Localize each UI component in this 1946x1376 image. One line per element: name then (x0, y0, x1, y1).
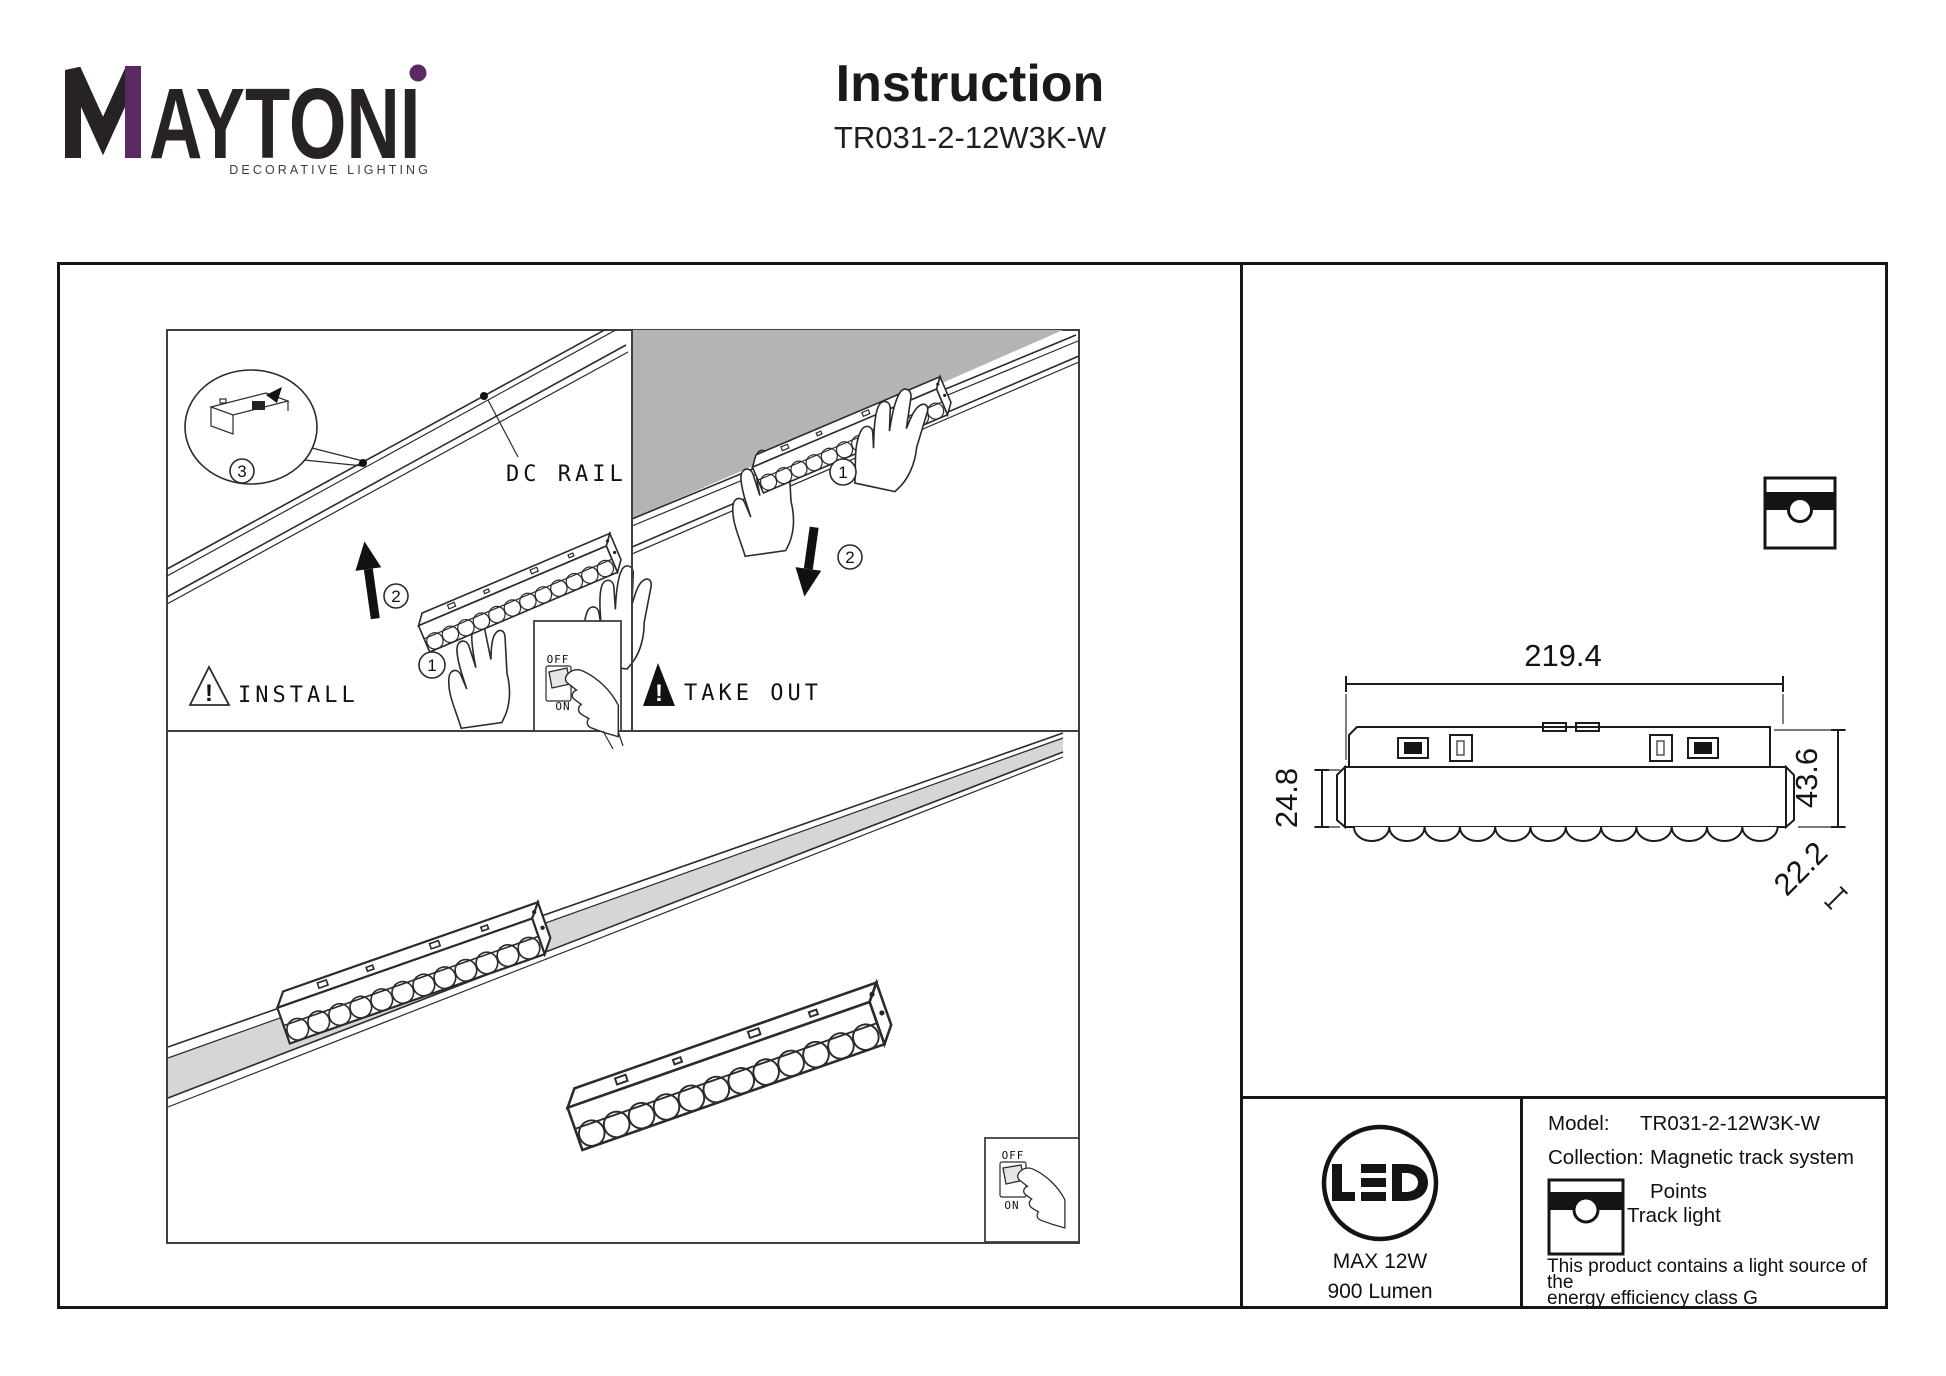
takeout-label: TAKE OUT (684, 681, 822, 706)
arrow-down-icon (792, 525, 827, 598)
switch2-off-label: OFF (1002, 1149, 1025, 1162)
collection-value: Magnetic track system (1650, 1146, 1854, 1170)
rail-point-marker (359, 459, 367, 467)
logo-i-dot (410, 65, 427, 82)
product-type-line2: Track light (1627, 1204, 1721, 1228)
product-type-line1: Points (1650, 1180, 1707, 1204)
dc-rail-bottom (168, 733, 1063, 1107)
connector-icon (252, 401, 265, 410)
switch2-on-label: ON (1004, 1199, 1019, 1212)
energy-note-line1: This product contains a light source of … (1547, 1259, 1887, 1291)
dc-rail-label: DC RAIL (506, 462, 627, 487)
luminous-flux: 900 Lumen (1290, 1280, 1470, 1304)
info-panel-divider (1520, 1099, 1523, 1306)
model-value: TR031-2-12W3K-W (1640, 1112, 1820, 1136)
instruction-sheet: AYTONI DECORATIVE LIGHTING Instruction T… (0, 0, 1946, 1376)
step-2-number-install: 2 (391, 587, 400, 606)
install-label: INSTALL (238, 683, 359, 708)
dc-rail-marker (480, 392, 488, 400)
led-badge (1316, 1119, 1444, 1247)
step-2-number-takeout: 2 (845, 548, 854, 567)
step-1-number-install: 1 (427, 656, 436, 675)
page-model-code: TR031-2-12W3K-W (740, 120, 1200, 156)
lens-scallops (1354, 827, 1778, 841)
warning-exclamation: ! (205, 680, 213, 707)
power-off-switch: OFF ON (534, 621, 623, 749)
title-block: Instruction TR031-2-12W3K-W (740, 54, 1200, 156)
energy-efficiency-note: This product contains a light source of … (1547, 1259, 1887, 1307)
model-label: Model: (1548, 1112, 1610, 1136)
switch1-on-label: ON (555, 700, 570, 713)
takeout-caption: ! TAKE OUT (643, 663, 822, 707)
dimension-body-height-value: 24.8 (1269, 768, 1304, 828)
dimension-width: 22.2 (1767, 835, 1847, 909)
maytoni-logo: AYTONI DECORATIVE LIGHTING (63, 40, 463, 180)
step-3-number: 3 (237, 462, 246, 481)
dimension-width-value: 22.2 (1767, 835, 1834, 902)
track-light-detached (562, 983, 896, 1150)
switch1-off-label: OFF (547, 653, 570, 666)
logo-tagline: DECORATIVE LIGHTING (229, 163, 431, 177)
step-1-number-takeout: 1 (838, 463, 847, 482)
install-caption: ! INSTALL (190, 667, 359, 708)
dimension-drawing: 219.4 (1242, 262, 1888, 1098)
power-on-switch: OFF ON (985, 1138, 1079, 1242)
installation-diagram: 3 DC RAIL 2 1 ! INSTALL 1 (166, 329, 1080, 1244)
max-power: MAX 12W (1290, 1250, 1470, 1274)
warning-exclamation-white: ! (655, 680, 663, 707)
page-title: Instruction (740, 54, 1200, 114)
logo-m-strokes (73, 70, 133, 158)
dimension-body-height: 24.8 (1269, 768, 1340, 828)
collection-label: Collection: (1548, 1146, 1644, 1170)
dimension-length-value: 219.4 (1524, 638, 1602, 673)
product-type-icon (1547, 1178, 1625, 1256)
arrow-up-icon (352, 540, 389, 621)
dimension-total-height-value: 43.6 (1789, 748, 1824, 808)
fixture-end-view-icon (1765, 478, 1835, 548)
connector-detail-balloon: 3 (185, 370, 363, 484)
energy-note-line2: energy efficiency class G (1547, 1291, 1887, 1307)
fixture-side-view (1337, 723, 1794, 841)
